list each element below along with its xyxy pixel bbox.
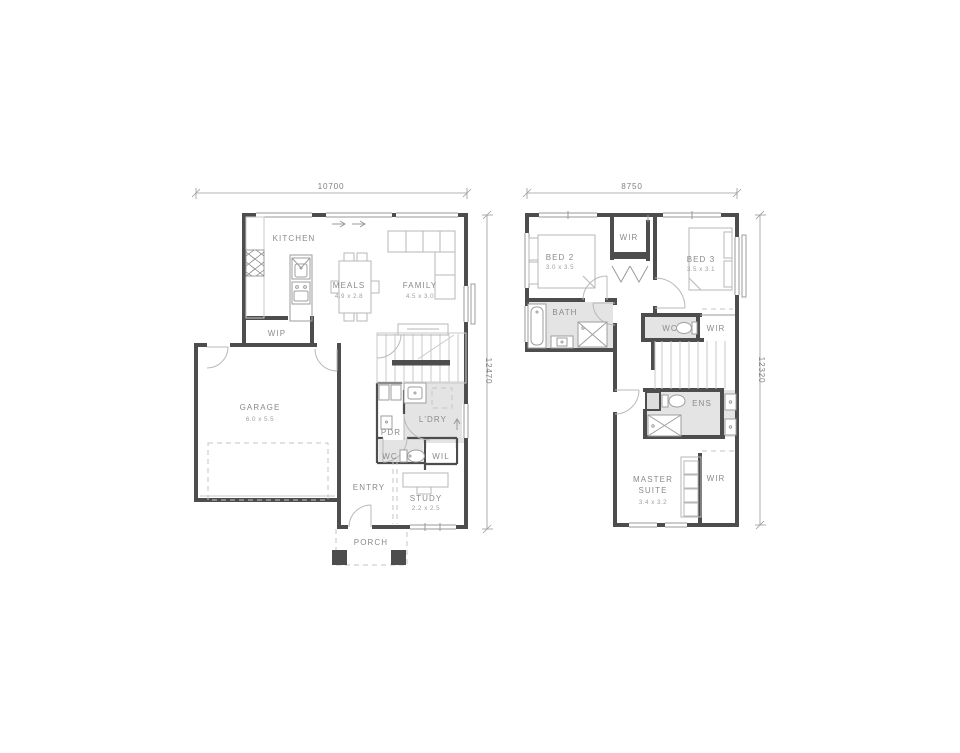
garage-size: 6.0 x 5.5 bbox=[246, 416, 274, 423]
gf-stairs bbox=[377, 333, 466, 383]
ff-width-dim-text: 8750 bbox=[621, 182, 642, 191]
gf-walls bbox=[196, 215, 466, 527]
family-size: 4.5 x 3.0 bbox=[406, 293, 434, 300]
master-label-line1: MASTER bbox=[633, 475, 673, 484]
gf-porch bbox=[332, 529, 407, 565]
bed3-label: BED 3 bbox=[687, 255, 716, 264]
porch-label: PORCH bbox=[354, 538, 388, 547]
family-label: FAMILY bbox=[403, 281, 437, 290]
ens-label: ENS bbox=[692, 399, 712, 408]
wir-hall-label: WIR bbox=[620, 233, 639, 242]
ff-width-dimension: 8750 bbox=[523, 182, 741, 199]
meals-size: 4.9 x 2.8 bbox=[335, 293, 363, 300]
bed2-size: 3.0 x 3.5 bbox=[546, 264, 574, 271]
ff-master-bed bbox=[681, 457, 701, 517]
study-label: STUDY bbox=[410, 494, 443, 503]
gf-entry-study bbox=[393, 460, 448, 524]
wc-label: WC bbox=[382, 452, 398, 461]
study-size: 2.2 x 2.5 bbox=[412, 505, 440, 512]
gf-height-dim-text: 12470 bbox=[484, 358, 493, 385]
kitchen-label: KITCHEN bbox=[273, 234, 316, 243]
gf-width-dim-text: 10700 bbox=[318, 182, 345, 191]
master-label-line2: SUITE bbox=[638, 486, 667, 495]
garage-label: GARAGE bbox=[240, 403, 281, 412]
meals-label: MEALS bbox=[333, 281, 366, 290]
floorplan-page: 10700 12470 bbox=[0, 0, 960, 753]
first-floor-plan: 8750 12320 bbox=[505, 178, 785, 578]
bed3-size: 3.5 x 3.1 bbox=[687, 266, 715, 273]
wil-label: WIL bbox=[432, 452, 450, 461]
ff-height-dimension: 12320 bbox=[755, 211, 766, 529]
wir-bed3-label: WIR bbox=[707, 324, 726, 333]
ground-floor-plan: 10700 12470 bbox=[180, 178, 510, 578]
wir-master-label: WIR bbox=[707, 474, 726, 483]
gf-garage-fixtures bbox=[200, 443, 335, 500]
gf-height-dimension: 12470 bbox=[482, 211, 493, 533]
ff-wc-fixtures bbox=[677, 322, 698, 334]
ff-stairs bbox=[655, 341, 725, 389]
master-size: 3.4 x 3.2 bbox=[639, 499, 667, 506]
bath-label: BATH bbox=[552, 308, 577, 317]
ff-height-dim-text: 12320 bbox=[757, 357, 766, 384]
fridge-hatch bbox=[246, 250, 264, 276]
wc-upper-label: WC bbox=[662, 324, 678, 333]
ff-shaded-areas bbox=[527, 302, 735, 437]
gf-kitchen-fixtures bbox=[246, 217, 312, 321]
pdr-label: PDR bbox=[381, 428, 401, 437]
entry-label: ENTRY bbox=[353, 483, 385, 492]
ldry-label: L'DRY bbox=[419, 415, 447, 424]
wip-label: WIP bbox=[268, 329, 286, 338]
gf-width-dimension: 10700 bbox=[192, 182, 471, 199]
bed2-label: BED 2 bbox=[546, 253, 575, 262]
